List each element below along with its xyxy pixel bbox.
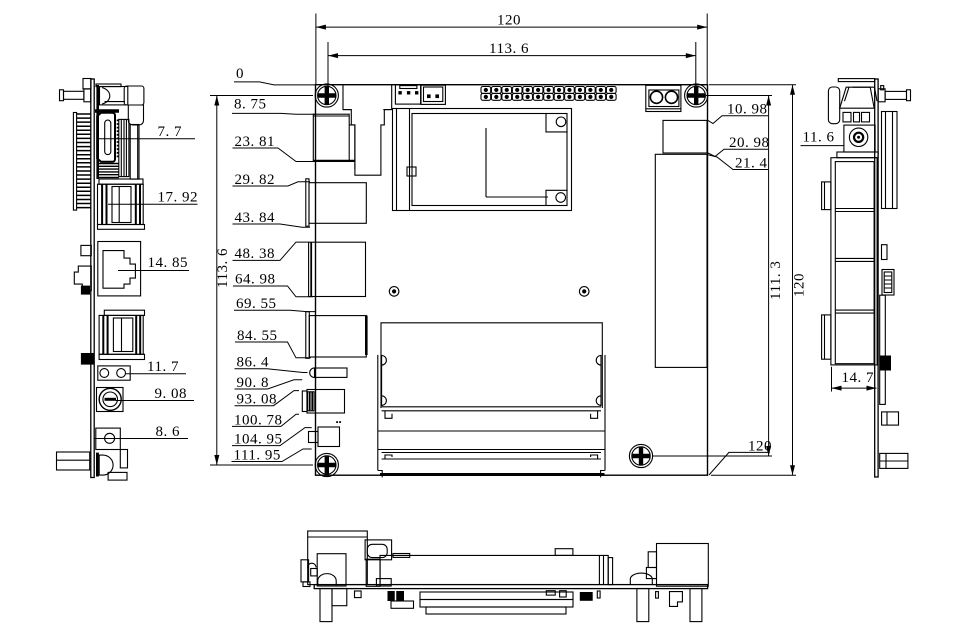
svg-text:11. 7: 11. 7 [147, 359, 179, 375]
svg-text:48. 38: 48. 38 [235, 246, 276, 262]
svg-text:21. 4: 21. 4 [735, 155, 768, 171]
svg-text:7. 7: 7. 7 [158, 124, 183, 140]
svg-text:14. 85: 14. 85 [148, 255, 189, 271]
svg-text:10. 98: 10. 98 [727, 102, 768, 118]
svg-text:84. 55: 84. 55 [237, 328, 278, 344]
svg-text:111. 3: 111. 3 [768, 261, 784, 300]
svg-text:0: 0 [236, 66, 244, 82]
svg-text:11. 6: 11. 6 [803, 130, 835, 146]
svg-text:69. 55: 69. 55 [236, 296, 277, 312]
svg-text:20. 98: 20. 98 [729, 135, 770, 151]
svg-text:120: 120 [792, 273, 808, 297]
svg-text:17. 92: 17. 92 [158, 190, 199, 206]
svg-text:9. 08: 9. 08 [155, 386, 188, 402]
svg-text:113. 6: 113. 6 [489, 41, 529, 57]
svg-text:120: 120 [497, 13, 521, 29]
svg-text:113. 6: 113. 6 [215, 248, 231, 288]
svg-text:104. 95: 104. 95 [234, 431, 283, 447]
svg-text:8. 75: 8. 75 [234, 97, 267, 113]
svg-text:86. 4: 86. 4 [237, 355, 270, 371]
svg-text:8. 6: 8. 6 [156, 424, 181, 440]
svg-text:64. 98: 64. 98 [235, 272, 276, 288]
svg-text:14. 7: 14. 7 [842, 370, 875, 386]
svg-text:43. 84: 43. 84 [235, 210, 276, 226]
